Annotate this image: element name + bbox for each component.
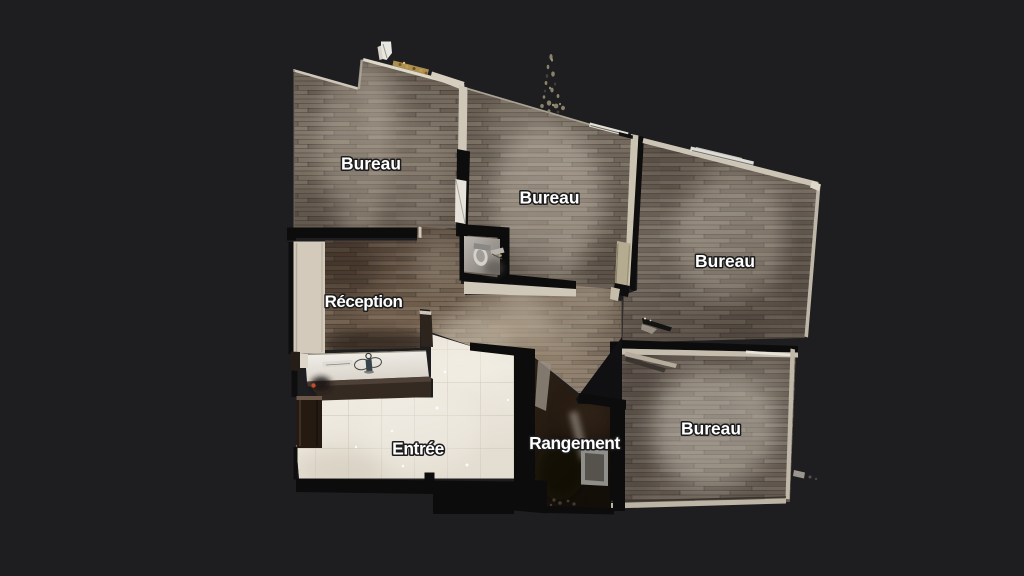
svg-text:Bureau: Bureau [681,419,741,439]
svg-text:Entrée: Entrée [392,439,444,459]
svg-text:Bureau: Bureau [341,154,401,174]
svg-text:Réception: Réception [325,292,403,311]
svg-text:Bureau: Bureau [695,251,755,271]
svg-text:Bureau: Bureau [520,188,580,208]
svg-text:Rangement: Rangement [529,433,620,453]
